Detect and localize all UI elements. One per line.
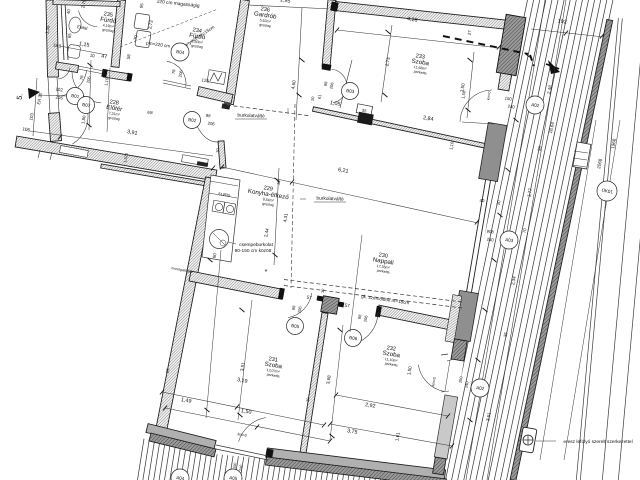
svg-text:burkolatváltó: burkolatváltó [316,196,344,203]
svg-text:30: 30 [321,288,326,293]
svg-text:A05: A05 [229,475,238,480]
svg-text:A04: A04 [176,475,185,480]
svg-text:burkolatváltó: burkolatváltó [237,113,265,120]
svg-text:csempeburkolat: csempeburkolat [239,242,274,248]
svg-text:40: 40 [480,198,485,203]
svg-text:90-150 cm között: 90-150 cm között [235,248,272,254]
svg-text:*: * [265,269,268,276]
svg-text:eresz lefolyó szerelt szerkeze: eresz lefolyó szerelt szerkezettel [563,439,632,445]
svg-text:10: 10 [306,397,311,402]
